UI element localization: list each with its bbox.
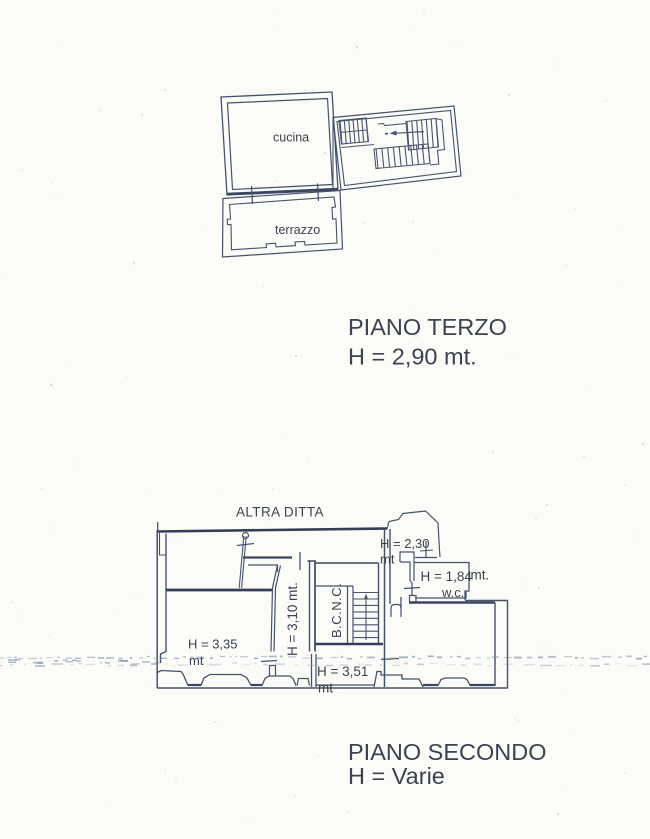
svg-text:PIANO TERZO: PIANO TERZO xyxy=(348,314,507,340)
svg-text:H = 3,35: H = 3,35 xyxy=(188,637,238,652)
svg-text:ALTRA DITTA: ALTRA DITTA xyxy=(236,505,324,520)
svg-text:H = 2,30: H = 2,30 xyxy=(380,536,430,551)
svg-text:mt.: mt. xyxy=(471,568,490,583)
svg-text:H = Varie: H = Varie xyxy=(348,763,445,789)
svg-text:terrazzo: terrazzo xyxy=(275,223,320,237)
svg-text:H = 3,51: H = 3,51 xyxy=(317,664,368,679)
svg-text:PIANO SECONDO: PIANO SECONDO xyxy=(348,739,546,765)
svg-text:H = 1,84: H = 1,84 xyxy=(421,569,473,584)
svg-text:mt: mt xyxy=(189,653,204,668)
svg-text:w.c.: w.c. xyxy=(441,585,464,600)
svg-text:H = 3,10 mt.: H = 3,10 mt. xyxy=(285,582,300,656)
svg-text:H = 2,90 mt.: H = 2,90 mt. xyxy=(348,344,477,370)
svg-text:B.C.N.C.: B.C.N.C. xyxy=(329,583,344,638)
svg-text:cucina: cucina xyxy=(273,131,309,145)
svg-text:mt: mt xyxy=(318,681,333,696)
svg-text:mt: mt xyxy=(380,552,395,567)
